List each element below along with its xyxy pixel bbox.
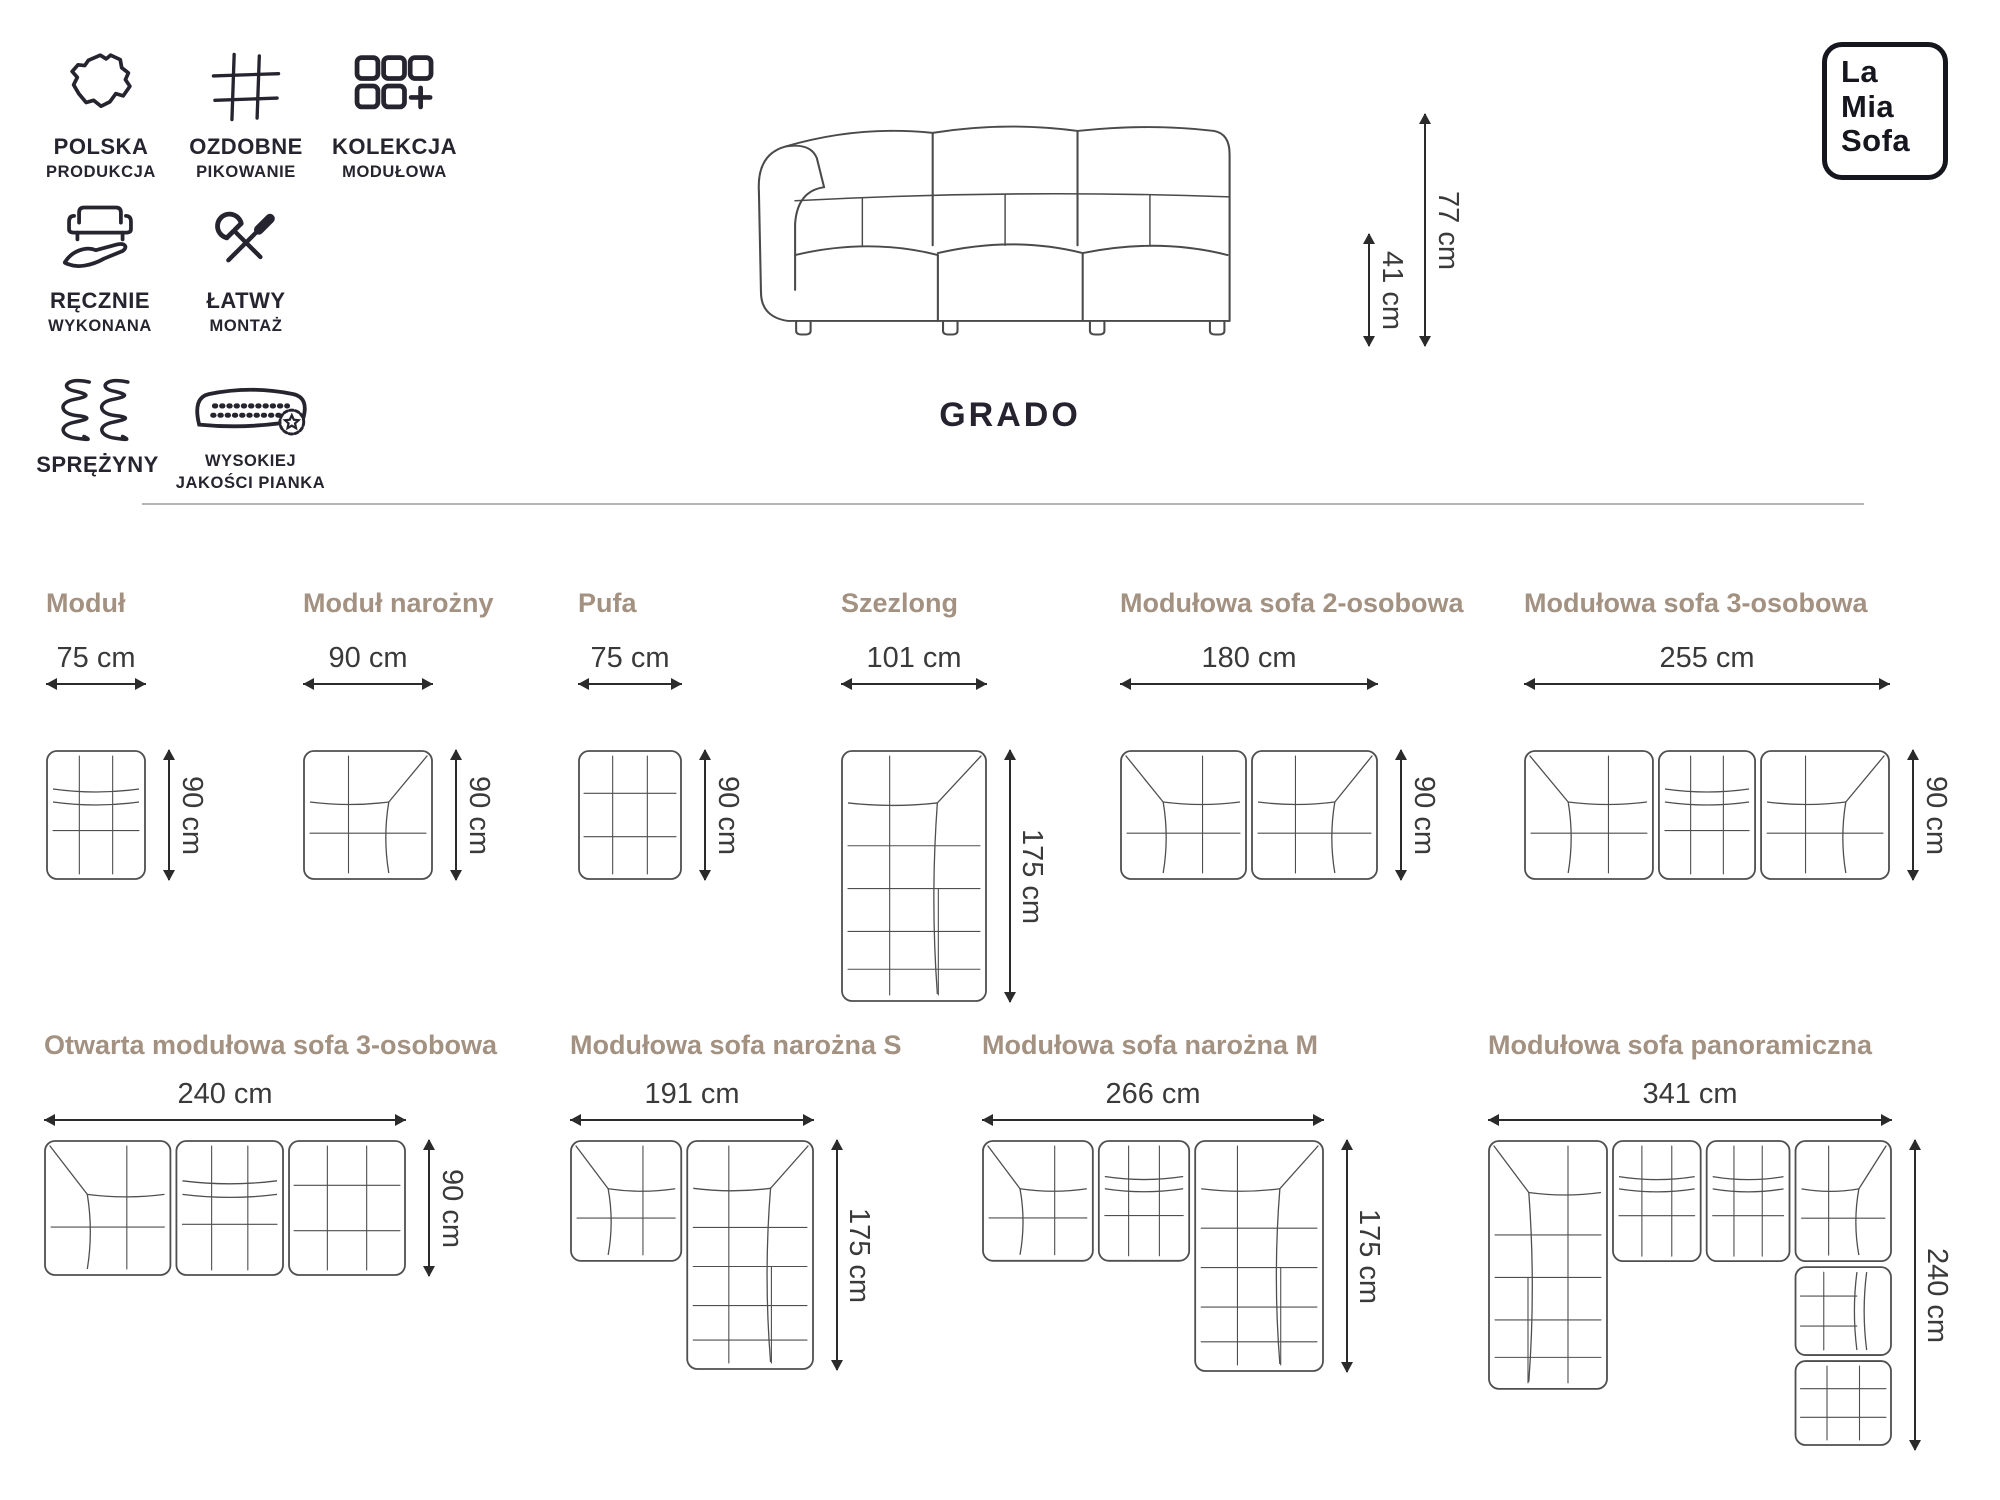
seat-height-label: 41 cm (1370, 274, 1412, 307)
module-diagram (46, 750, 146, 885)
module-diagram (578, 750, 682, 885)
poland-map-icon (36, 44, 166, 130)
foam-badge-icon (168, 374, 333, 448)
module-title: Moduł (46, 588, 125, 619)
height-dimension: 240 cm (1914, 1140, 1958, 1450)
width-arrow (578, 683, 682, 685)
width-dimension: 101 cm (841, 642, 987, 685)
height-arrow (455, 750, 457, 880)
module-diagram (1488, 1140, 1892, 1455)
height-dimension: 90 cm (704, 750, 748, 880)
logo-line: La (1841, 55, 1943, 90)
height-dimension: 90 cm (455, 750, 499, 880)
spec-sheet: POLSKA PRODUKCJA OZDOBNE PIKOWANIE KOLEK… (0, 0, 2000, 1500)
height-dimension: 90 cm (1912, 750, 1956, 880)
feature-recznie-wykonana: RĘCZNIE WYKONANA (30, 198, 170, 336)
module-title: Modułowa sofa 2-osobowa (1120, 588, 1464, 619)
height-dimension: 90 cm (1400, 750, 1444, 880)
feature-sublabel: PIKOWANIE (180, 163, 312, 182)
height-arrow (428, 1140, 430, 1276)
logo-line: Mia (1841, 90, 1943, 125)
height-dimension: 90 cm (428, 1140, 472, 1276)
module-diagram (44, 1140, 406, 1281)
module-diagram (1120, 750, 1378, 885)
page-title: GRADO (760, 396, 1260, 435)
module-diagram (570, 1140, 814, 1375)
feature-sublabel: PRODUKCJA (36, 163, 166, 182)
feature-sublabel: WYKONANA (30, 317, 170, 336)
height-arrow (168, 750, 170, 880)
width-dimension: 240 cm (44, 1078, 406, 1121)
height-dimension: 175 cm (1009, 750, 1053, 1002)
module-diagram (303, 750, 433, 885)
feature-sublabel: MODUŁOWA (322, 163, 467, 182)
modules-icon (322, 44, 467, 130)
height-dimension: 175 cm (1346, 1140, 1390, 1372)
logo-line: Sofa (1841, 124, 1943, 159)
module-title: Modułowa sofa panoramiczna (1488, 1030, 1872, 1061)
brand-logo: La Mia Sofa (1822, 42, 1948, 180)
width-arrow (303, 683, 433, 685)
width-arrow (1120, 683, 1378, 685)
sofa-illustration (672, 98, 1272, 355)
width-arrow (982, 1119, 1324, 1121)
quilting-grid-icon (180, 44, 312, 130)
feature-polska-produkcja: POLSKA PRODUKCJA (36, 44, 166, 182)
seat-height-dimension: 41 cm (1368, 234, 1412, 346)
width-arrow (46, 683, 146, 685)
feature-label: POLSKA (36, 134, 166, 160)
module-title: Modułowa sofa 3-osobowa (1524, 588, 1868, 619)
module-title: Otwarta modułowa sofa 3-osobowa (44, 1030, 497, 1061)
height-arrow (1400, 750, 1402, 880)
width-dimension: 191 cm (570, 1078, 814, 1121)
feature-label: OZDOBNE (180, 134, 312, 160)
width-dimension: 180 cm (1120, 642, 1378, 685)
handmade-icon (30, 198, 170, 284)
width-dimension: 255 cm (1524, 642, 1890, 685)
total-height-label: 77 cm (1426, 214, 1468, 247)
feature-sublabel: JAKOŚCI PIANKA (168, 474, 333, 493)
module-title: Modułowa sofa narożna S (570, 1030, 902, 1061)
width-dimension: 75 cm (46, 642, 146, 685)
springs-icon (35, 374, 160, 448)
height-arrow (704, 750, 706, 880)
module-diagram (982, 1140, 1324, 1377)
height-dimension: 90 cm (168, 750, 212, 880)
tools-icon (182, 198, 310, 284)
height-arrow (1346, 1140, 1348, 1372)
width-arrow (841, 683, 987, 685)
module-title: Modułowa sofa narożna M (982, 1030, 1318, 1061)
width-dimension: 75 cm (578, 642, 682, 685)
feature-label: KOLEKCJA (322, 134, 467, 160)
module-title: Moduł narożny (303, 588, 494, 619)
feature-latwy-montaz: ŁATWY MONTAŻ (182, 198, 310, 336)
width-arrow (44, 1119, 406, 1121)
feature-sublabel: MONTAŻ (182, 317, 310, 336)
total-height-arrow (1424, 114, 1426, 346)
module-title: Szezlong (841, 588, 958, 619)
height-dimension: 175 cm (836, 1140, 880, 1370)
feature-ozdobne-pikowanie: OZDOBNE PIKOWANIE (180, 44, 312, 182)
height-arrow (1912, 750, 1914, 880)
width-arrow (570, 1119, 814, 1121)
width-arrow (1488, 1119, 1892, 1121)
width-dimension: 90 cm (303, 642, 433, 685)
feature-label: WYSOKIEJ (168, 452, 333, 471)
feature-kolekcja-modulowa: KOLEKCJA MODUŁOWA (322, 44, 467, 182)
feature-label: RĘCZNIE (30, 288, 170, 314)
feature-label: SPRĘŻYNY (35, 452, 160, 478)
width-dimension: 341 cm (1488, 1078, 1892, 1121)
feature-sprezyny: SPRĘŻYNY (35, 374, 160, 481)
width-arrow (1524, 683, 1890, 685)
feature-wysokiej-jakosci-pianka: WYSOKIEJ JAKOŚCI PIANKA (168, 374, 333, 493)
module-diagram (1524, 750, 1890, 885)
total-height-dimension: 77 cm (1424, 114, 1468, 346)
feature-label: ŁATWY (182, 288, 310, 314)
height-arrow (1914, 1140, 1916, 1450)
height-arrow (836, 1140, 838, 1370)
module-title: Pufa (578, 588, 637, 619)
width-dimension: 266 cm (982, 1078, 1324, 1121)
seat-height-arrow (1368, 234, 1370, 346)
module-diagram (841, 750, 987, 1007)
section-divider (142, 503, 1864, 505)
height-arrow (1009, 750, 1011, 1002)
